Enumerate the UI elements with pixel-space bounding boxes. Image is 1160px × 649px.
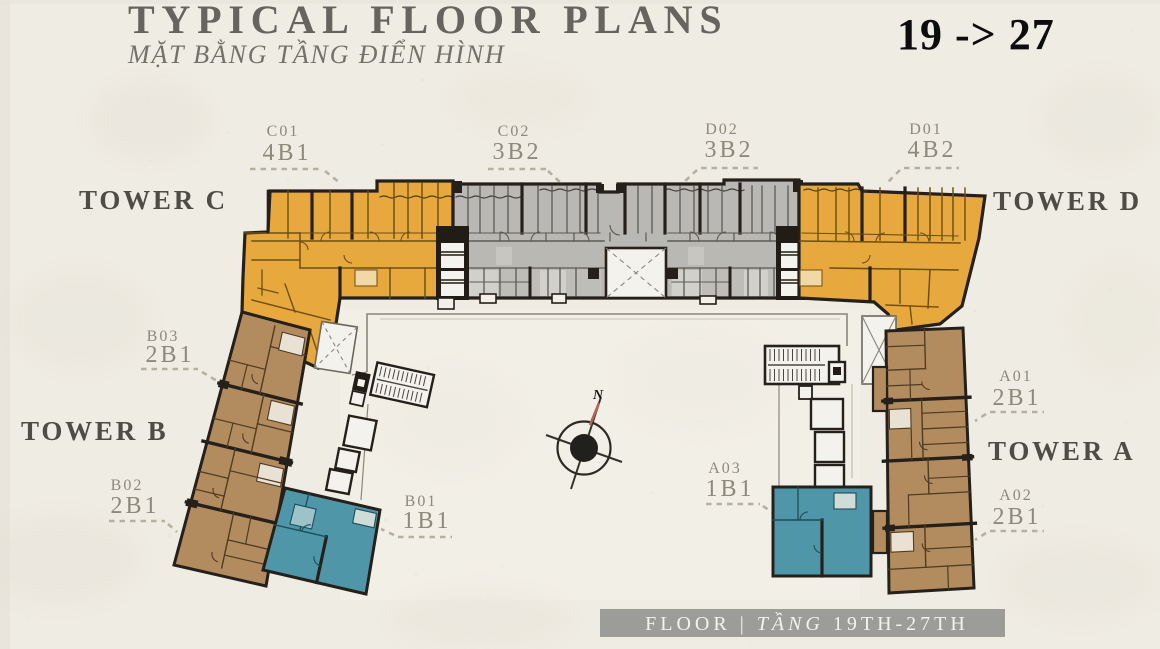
svg-text:TYPICAL FLOOR PLANS: TYPICAL FLOOR PLANS [128, 0, 728, 42]
svg-text:A02: A02 [999, 487, 1033, 504]
svg-text:TOWER C: TOWER C [79, 185, 228, 215]
svg-text:MẶT BẰNG TẦNG ĐIỂN HÌNH: MẶT BẰNG TẦNG ĐIỂN HÌNH [127, 40, 505, 69]
svg-text:3B2: 3B2 [704, 137, 753, 163]
svg-text:A01: A01 [999, 368, 1033, 385]
svg-text:1B1: 1B1 [402, 508, 451, 534]
svg-text:TOWER B: TOWER B [21, 416, 168, 446]
svg-text:19 -> 27: 19 -> 27 [897, 10, 1055, 59]
svg-text:B02: B02 [111, 477, 144, 494]
svg-text:N: N [592, 388, 604, 403]
svg-text:TOWER A: TOWER A [988, 436, 1135, 466]
svg-text:TOWER D: TOWER D [993, 186, 1142, 216]
svg-text:D02: D02 [705, 121, 739, 138]
svg-text:D01: D01 [909, 121, 943, 138]
svg-text:3B2: 3B2 [492, 139, 541, 165]
svg-text:C02: C02 [498, 123, 531, 140]
svg-text:2B1: 2B1 [992, 385, 1041, 411]
svg-text:2B1: 2B1 [110, 493, 159, 519]
svg-text:2B1: 2B1 [145, 342, 194, 368]
svg-text:FLOOR | TẦNG 19TH-27TH: FLOOR | TẦNG 19TH-27TH [645, 611, 969, 635]
svg-text:1B1: 1B1 [705, 476, 754, 502]
svg-text:4B1: 4B1 [262, 140, 311, 166]
svg-text:C01: C01 [267, 123, 300, 140]
svg-text:A03: A03 [708, 460, 742, 477]
svg-text:4B2: 4B2 [907, 137, 956, 163]
svg-text:2B1: 2B1 [992, 504, 1041, 530]
